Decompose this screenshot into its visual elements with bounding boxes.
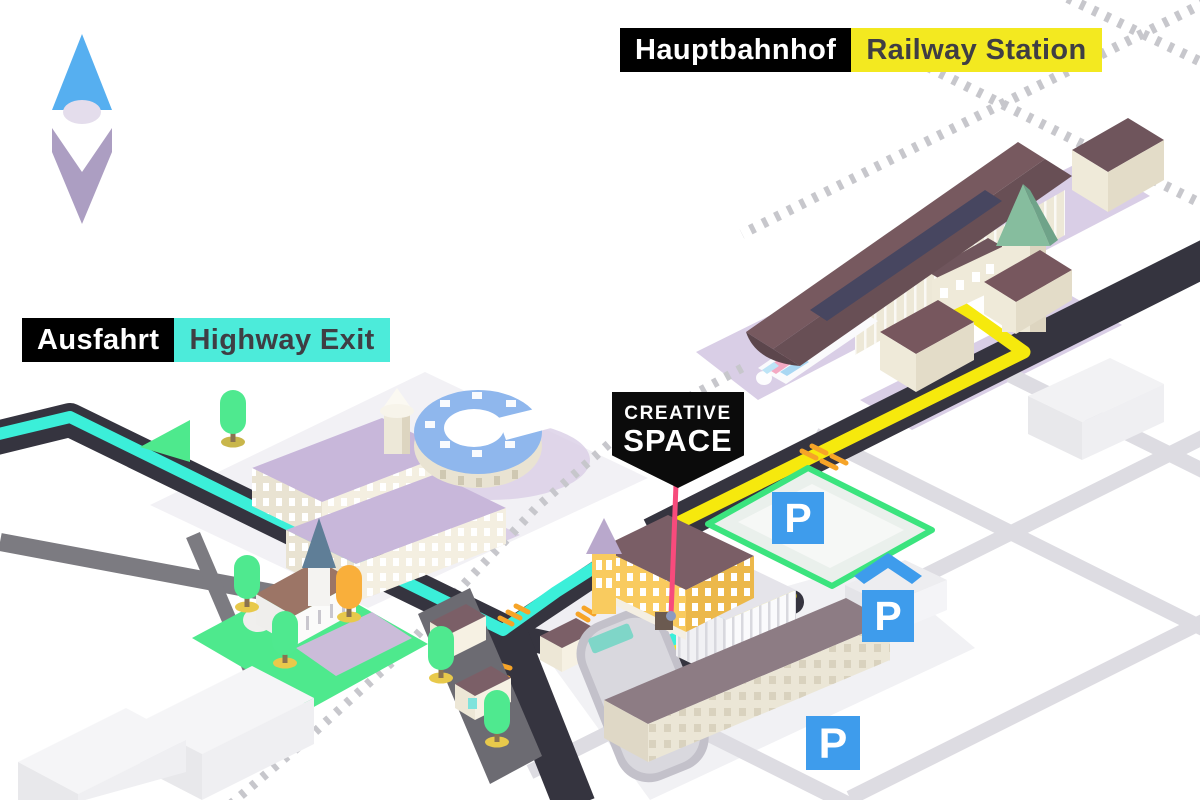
tree (234, 555, 260, 613)
isometric-directions-map: P P P Hauptbahnhof Railway Station Ausfa… (0, 0, 1200, 800)
tree (220, 390, 246, 448)
highway-label-english: Highway Exit (174, 318, 389, 362)
parking-p-icon: P (819, 720, 848, 768)
tree (428, 626, 454, 684)
highway-exit-label: Ausfahrt Highway Exit (22, 318, 390, 362)
tree (272, 611, 298, 669)
compass-north-arrow-icon (52, 34, 112, 224)
parking-marker-surface-south: P (806, 716, 860, 770)
tree-orange (336, 565, 362, 623)
parking-p-icon: P (784, 495, 811, 541)
map-canvas: P P P (0, 0, 1200, 800)
parking-marker-surface-north: P (772, 492, 824, 544)
venue-name-line1: CREATIVE (612, 403, 744, 425)
venue-pointer-dot (666, 611, 676, 621)
station-label-german: Hauptbahnhof (620, 28, 851, 72)
highway-label-german: Ausfahrt (22, 318, 174, 362)
railway-station-label: Hauptbahnhof Railway Station (620, 28, 1102, 72)
station-label-english: Railway Station (851, 28, 1101, 72)
parking-p-icon: P (874, 593, 901, 639)
tree (484, 690, 510, 748)
venue-name-line2: SPACE (612, 423, 744, 459)
white-blocks (18, 666, 314, 800)
